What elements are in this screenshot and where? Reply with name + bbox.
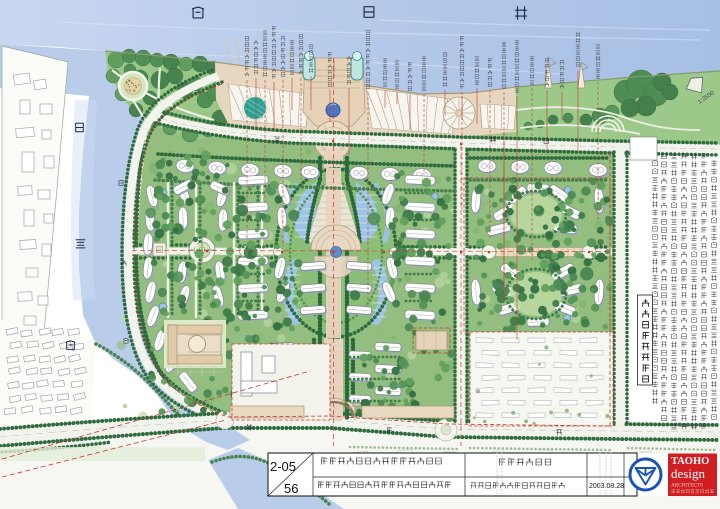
svg-text:ARCHITECTS: ARCHITECTS [671, 483, 703, 489]
svg-text:56: 56 [284, 481, 298, 496]
svg-text:2-05: 2-05 [270, 459, 296, 474]
svg-text:design: design [671, 466, 705, 481]
